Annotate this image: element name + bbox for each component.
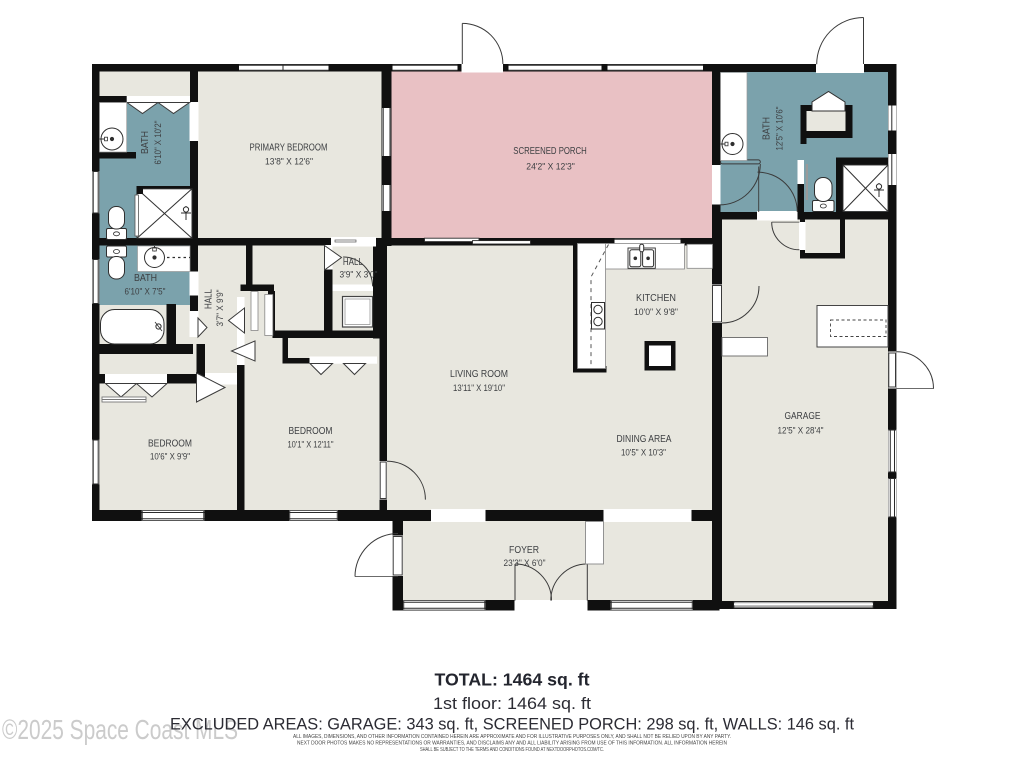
svg-text:BEDROOM: BEDROOM [148,439,192,450]
svg-text:6'10" X 10'2": 6'10" X 10'2" [153,121,163,165]
svg-text:EXCLUDED AREAS: GARAGE: 343 sq: EXCLUDED AREAS: GARAGE: 343 sq. ft, SCRE… [170,716,854,734]
svg-text:PRIMARY BEDROOM: PRIMARY BEDROOM [250,143,328,154]
svg-text:NEXT DOOR PHOTOS MAKES NO REPR: NEXT DOOR PHOTOS MAKES NO REPRESENTATION… [297,740,727,746]
svg-text:HALL: HALL [203,289,214,309]
svg-text:10'5" X 10'3": 10'5" X 10'3" [621,447,666,457]
svg-text:GARAGE: GARAGE [785,411,821,422]
svg-text:13'11" X 19'10": 13'11" X 19'10" [453,383,505,393]
svg-text:23'3" X 6'0": 23'3" X 6'0" [504,558,546,568]
svg-text:BATH: BATH [134,273,157,284]
svg-text:TOTAL: 1464 sq. ft: TOTAL: 1464 sq. ft [435,670,590,690]
svg-text:3'7" X 9'9": 3'7" X 9'9" [215,290,225,327]
svg-text:10'1" X 12'11": 10'1" X 12'11" [288,440,334,450]
svg-text:ALL IMAGES, DIMENSIONS, AND OT: ALL IMAGES, DIMENSIONS, AND OTHER INFORM… [293,734,731,740]
svg-text:10'6" X 9'9": 10'6" X 9'9" [150,452,190,462]
svg-text:BEDROOM: BEDROOM [289,426,333,437]
svg-text:KITCHEN: KITCHEN [636,293,676,304]
svg-text:BATH: BATH [140,131,151,154]
svg-text:DINING AREA: DINING AREA [617,434,672,445]
svg-text:24'2" X 12'3": 24'2" X 12'3" [526,162,575,172]
svg-text:SCREENED PORCH: SCREENED PORCH [513,146,587,157]
svg-text:BATH: BATH [761,117,772,140]
svg-text:6'10" X 7'5": 6'10" X 7'5" [125,286,166,296]
svg-text:LIVING ROOM: LIVING ROOM [450,369,508,380]
svg-text:13'8" X 12'6": 13'8" X 12'6" [265,157,313,167]
svg-text:1st floor: 1464 sq. ft: 1st floor: 1464 sq. ft [433,695,591,713]
svg-text:FOYER: FOYER [509,545,539,556]
svg-text:SHALL BE SUBJECT TO THE TERMS: SHALL BE SUBJECT TO THE TERMS AND CONDIT… [420,747,604,753]
svg-text:HALL: HALL [343,257,363,268]
svg-text:12'5" X 28'4": 12'5" X 28'4" [778,426,824,436]
svg-text:12'5" X 10'6": 12'5" X 10'6" [774,107,784,151]
svg-text:3'9" X 3'0": 3'9" X 3'0" [340,270,378,280]
svg-text:10'0" X 9'8": 10'0" X 9'8" [634,307,678,317]
